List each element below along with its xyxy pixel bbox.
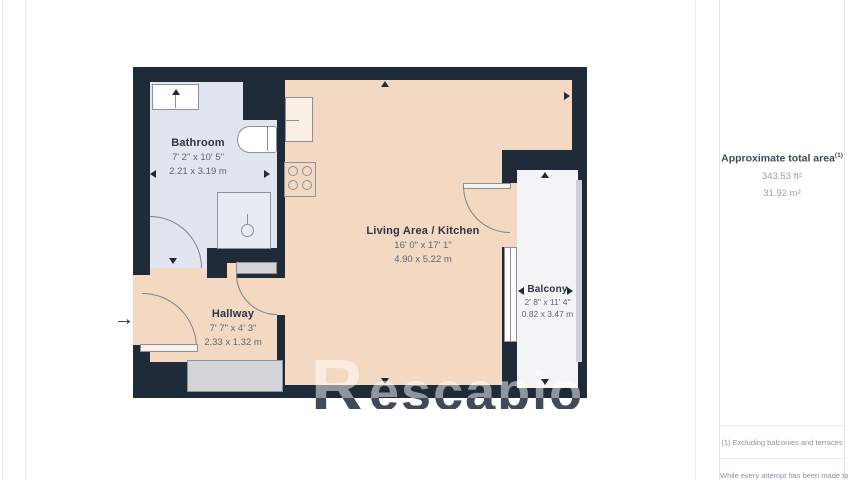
room-dims-metric: 2.33 x 1.32 m — [173, 337, 293, 348]
area-summary-panel: Approximate total area(1) 343.53 ft² 31.… — [719, 0, 845, 480]
entry-arrow-icon: → — [114, 308, 134, 331]
measure-arrow-icon — [172, 89, 180, 95]
content-edge-line — [25, 0, 26, 480]
sink-line — [285, 120, 299, 121]
room-living-kitchen: Living Area / Kitchen 16' 0" x 17' 1" 4.… — [333, 225, 513, 265]
panel-divider — [720, 425, 844, 426]
room-bathroom: Bathroom 7' 2" x 10' 5" 2.21 x 3.19 m — [153, 137, 243, 177]
panel-divider — [720, 458, 844, 459]
window-marker-line — [175, 95, 176, 108]
door-leaf — [236, 262, 277, 274]
footnote-excluding: (1) Excluding balconies and terraces — [720, 438, 844, 447]
balcony-glazing — [576, 180, 582, 362]
total-area-sqft: 343.53 ft² — [720, 171, 844, 182]
room-dims-imperial: 16' 0" x 17' 1" — [333, 240, 513, 251]
toilet-tank-line — [267, 127, 268, 151]
room-dims-imperial: 7' 7" x 4' 3" — [173, 323, 293, 334]
footnote-marker: (1) — [835, 152, 843, 159]
room-dims-metric: 0.82 x 3.47 m — [517, 309, 578, 319]
room-label: Hallway — [173, 308, 293, 320]
measure-arrow-icon — [541, 172, 549, 178]
shower-pipe-line — [247, 214, 248, 224]
room-dims-metric: 4.90 x 5.22 m — [333, 254, 513, 265]
total-area-label: Approximate total area(1) — [720, 152, 844, 165]
watermark: R — [311, 398, 363, 409]
disclaimer-text: While every attempt has been made to — [720, 471, 844, 480]
room-balcony: Balcony 2' 8" x 11' 4" 0.82 x 3.47 m — [517, 284, 578, 319]
burner-icon — [302, 180, 312, 190]
room-dims-metric: 2.21 x 3.19 m — [153, 166, 243, 177]
shower-icon — [217, 192, 271, 249]
total-area-sqm: 31.92 m² — [720, 188, 844, 199]
burner-icon — [288, 180, 298, 190]
total-area-label-text: Approximate total area — [721, 153, 835, 165]
watermark: R — [311, 350, 363, 398]
toilet-icon — [237, 126, 277, 153]
measure-arrow-icon — [381, 81, 389, 87]
page-edge-line — [2, 0, 3, 480]
measure-arrow-icon — [264, 170, 270, 178]
room-label: Balcony — [517, 284, 578, 295]
main-panel-divider — [695, 0, 696, 480]
room-dims-imperial: 7' 2" x 10' 5" — [153, 152, 243, 163]
burner-icon — [288, 166, 298, 176]
floorplan-image[interactable]: Bathroom 7' 2" x 10' 5" 2.21 x 3.19 m Li… — [133, 67, 587, 398]
burner-icon — [302, 166, 312, 176]
room-hallway: Hallway 7' 7" x 4' 3" 2.33 x 1.32 m — [173, 308, 293, 348]
room-dims-imperial: 2' 8" x 11' 4" — [517, 297, 578, 307]
balcony-floor — [517, 170, 578, 388]
living-floor-upper — [285, 80, 572, 150]
total-area-block: Approximate total area(1) 343.53 ft² 31.… — [720, 152, 844, 199]
room-label: Living Area / Kitchen — [333, 225, 513, 237]
room-label: Bathroom — [153, 137, 243, 149]
watermark: escapio — [369, 365, 584, 398]
watermark-overflow: R escapio — [133, 398, 587, 409]
closet — [187, 360, 283, 392]
shower-drain-icon — [241, 224, 254, 237]
wall-notch-opening — [227, 263, 236, 278]
watermark: escapio — [369, 398, 584, 409]
measure-arrow-icon — [169, 258, 177, 264]
measure-arrow-icon — [564, 92, 570, 100]
